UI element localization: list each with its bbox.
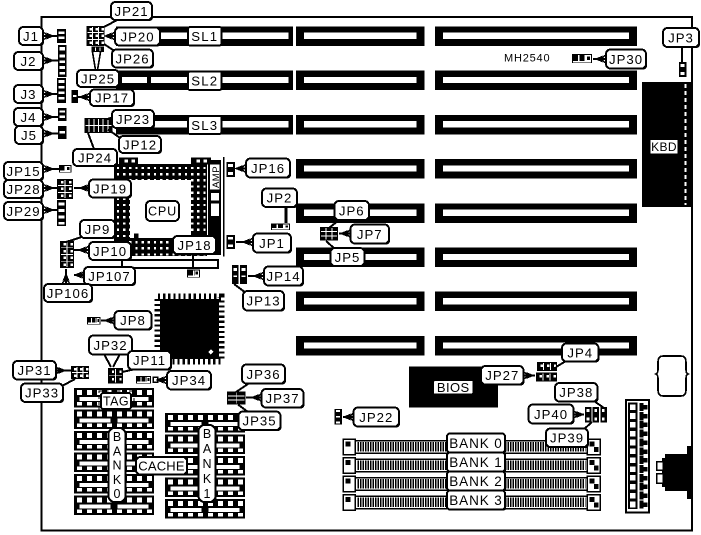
- svg-text:JP13: JP13: [246, 294, 280, 309]
- svg-text:J3: J3: [21, 87, 37, 102]
- svg-text:JP12: JP12: [123, 137, 157, 152]
- svg-text:B: B: [203, 427, 211, 441]
- svg-text:JP8: JP8: [120, 313, 146, 328]
- svg-text:J1: J1: [23, 29, 39, 44]
- svg-text:JP33: JP33: [25, 386, 59, 401]
- svg-text:JP34: JP34: [172, 373, 206, 388]
- svg-text:JP20: JP20: [120, 29, 154, 44]
- svg-text:BANK 1: BANK 1: [449, 455, 502, 470]
- svg-text:JP5: JP5: [335, 250, 361, 265]
- svg-text:JP35: JP35: [242, 414, 276, 429]
- svg-text:JP17: JP17: [95, 91, 129, 106]
- svg-text:BANK 2: BANK 2: [449, 474, 502, 489]
- svg-text:JP37: JP37: [265, 391, 299, 406]
- svg-text:JP14: JP14: [266, 269, 300, 284]
- svg-text:JP23: JP23: [116, 112, 150, 127]
- svg-text:JP10: JP10: [93, 244, 127, 259]
- svg-text:BIOS: BIOS: [437, 380, 470, 395]
- svg-text:JP38: JP38: [559, 385, 593, 400]
- svg-text:J4: J4: [21, 110, 37, 125]
- svg-text:MH2540: MH2540: [504, 53, 550, 65]
- svg-text:JP24: JP24: [78, 150, 112, 165]
- svg-text:B: B: [113, 430, 121, 444]
- svg-text:JP6: JP6: [339, 203, 365, 218]
- svg-text:JP2: JP2: [267, 191, 293, 206]
- svg-text:BANK 3: BANK 3: [449, 493, 502, 508]
- svg-text:K: K: [113, 473, 122, 487]
- svg-text:JP4: JP4: [567, 345, 593, 360]
- svg-text:J2: J2: [21, 54, 37, 69]
- svg-text:BANK 0: BANK 0: [449, 436, 502, 451]
- svg-text:JP7: JP7: [357, 227, 383, 242]
- svg-text:CPU: CPU: [148, 205, 177, 219]
- svg-text:SL3: SL3: [191, 118, 218, 133]
- svg-text:1: 1: [204, 487, 211, 501]
- svg-text:JP29: JP29: [6, 204, 40, 219]
- svg-text:JP21: JP21: [114, 4, 148, 19]
- svg-text:CACHE: CACHE: [138, 458, 185, 473]
- svg-text:JP40: JP40: [534, 407, 568, 422]
- svg-text:JP18: JP18: [177, 238, 211, 253]
- svg-text:SL2: SL2: [191, 74, 218, 89]
- svg-text:0: 0: [114, 487, 121, 501]
- svg-text:JP16: JP16: [251, 161, 285, 176]
- svg-text:JP36: JP36: [246, 367, 280, 382]
- svg-text:JP30: JP30: [609, 52, 643, 67]
- svg-text:JP106: JP106: [47, 286, 89, 301]
- svg-text:KBD: KBD: [651, 140, 677, 154]
- svg-text:JP31: JP31: [17, 363, 51, 378]
- svg-text:JP32: JP32: [93, 338, 127, 353]
- svg-text:TAG: TAG: [103, 395, 129, 409]
- svg-text:N: N: [112, 459, 121, 473]
- svg-text:JP25: JP25: [81, 71, 115, 86]
- svg-text:JP27: JP27: [485, 368, 519, 383]
- svg-text:JP3: JP3: [668, 30, 694, 45]
- svg-text:SL1: SL1: [191, 29, 218, 44]
- svg-text:JP19: JP19: [93, 181, 127, 196]
- svg-text:JP15: JP15: [6, 164, 40, 179]
- svg-text:JP26: JP26: [115, 51, 149, 66]
- svg-text:JP22: JP22: [359, 410, 393, 425]
- svg-text:JP1: JP1: [259, 236, 285, 251]
- svg-text:AMP: AMP: [211, 166, 222, 188]
- svg-text:JP9: JP9: [85, 222, 111, 237]
- svg-text:J5: J5: [21, 128, 37, 143]
- svg-text:K: K: [203, 472, 212, 486]
- svg-text:A: A: [203, 442, 212, 456]
- svg-text:JP11: JP11: [133, 353, 166, 368]
- svg-text:N: N: [202, 457, 211, 471]
- svg-text:JP107: JP107: [88, 269, 130, 284]
- svg-text:A: A: [113, 444, 122, 458]
- svg-text:JP39: JP39: [550, 431, 584, 446]
- svg-text:JP28: JP28: [6, 182, 40, 197]
